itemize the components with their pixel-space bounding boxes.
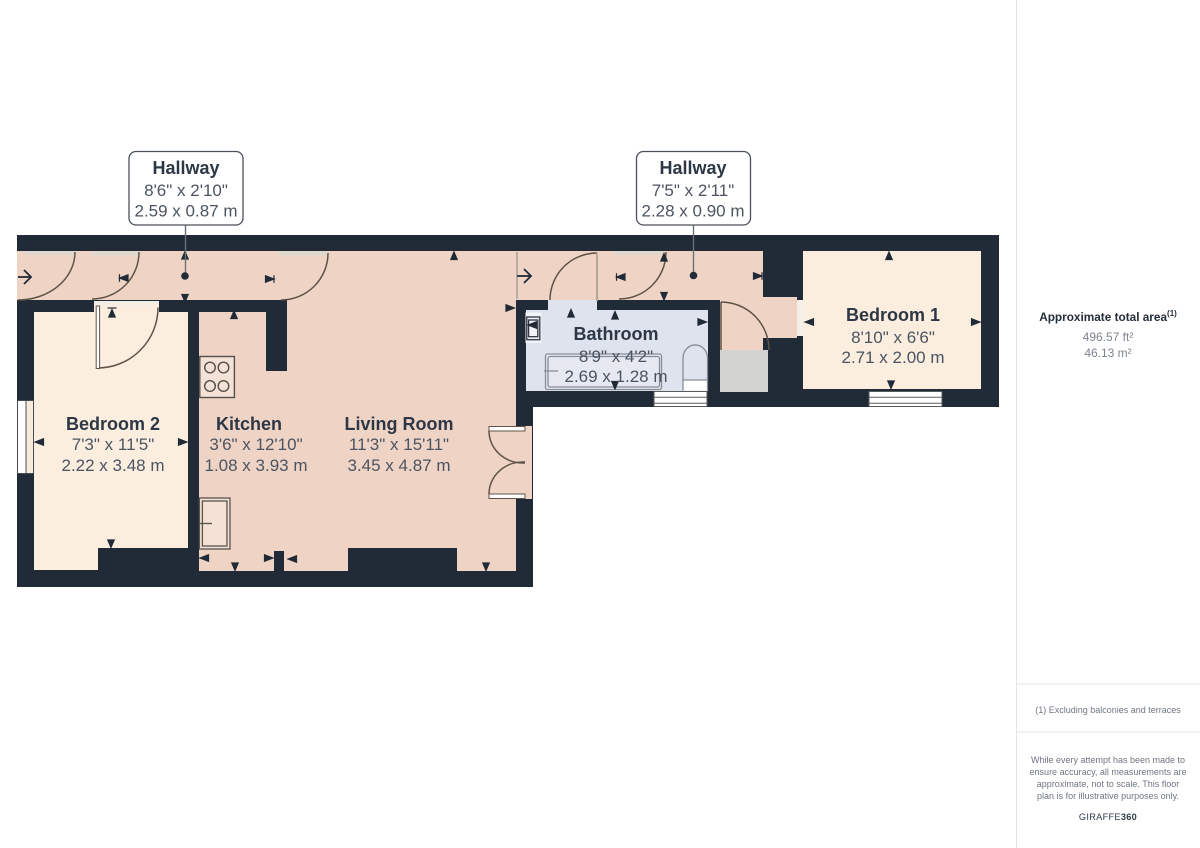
svg-text:2.59 x 0.87 m: 2.59 x 0.87 m [134, 202, 237, 221]
svg-text:2.71 x 2.00 m: 2.71 x 2.00 m [841, 348, 944, 367]
svg-text:plan is for illustrative purpo: plan is for illustrative purposes only. [1037, 791, 1179, 801]
svg-text:ensure accuracy, all measureme: ensure accuracy, all measurements are [1030, 767, 1187, 777]
svg-text:11'3" x 15'11": 11'3" x 15'11" [349, 435, 449, 454]
svg-text:46.13 m²: 46.13 m² [1084, 346, 1131, 360]
svg-text:Hallway: Hallway [659, 158, 726, 178]
svg-text:Bedroom 2: Bedroom 2 [66, 414, 160, 434]
svg-text:While every attempt has been m: While every attempt has been made to [1031, 755, 1185, 765]
svg-text:2.28 x 0.90 m: 2.28 x 0.90 m [641, 202, 744, 221]
svg-text:(1) Excluding balconies and te: (1) Excluding balconies and terraces [1035, 705, 1181, 715]
svg-text:3.45 x 4.87 m: 3.45 x 4.87 m [347, 456, 450, 475]
svg-text:7'5" x 2'11": 7'5" x 2'11" [652, 181, 735, 200]
svg-text:496.57 ft²: 496.57 ft² [1083, 330, 1134, 344]
svg-text:3'6" x 12'10": 3'6" x 12'10" [209, 435, 302, 454]
svg-text:approximate, not to scale. Thi: approximate, not to scale. This floor [1037, 779, 1179, 789]
svg-text:Kitchen: Kitchen [216, 414, 282, 434]
svg-text:8'9" x 4'2": 8'9" x 4'2" [579, 347, 653, 366]
svg-text:1.08 x 3.93 m: 1.08 x 3.93 m [204, 456, 307, 475]
svg-text:Bathroom: Bathroom [574, 324, 659, 344]
svg-text:8'6" x 2'10": 8'6" x 2'10" [144, 181, 228, 200]
svg-text:GIRAFFE360: GIRAFFE360 [1079, 812, 1137, 822]
svg-text:7'3" x 11'5": 7'3" x 11'5" [72, 435, 155, 454]
svg-text:2.22 x 3.48 m: 2.22 x 3.48 m [61, 456, 164, 475]
svg-text:2.69 x 1.28 m: 2.69 x 1.28 m [564, 367, 667, 386]
svg-text:Approximate total area(1): Approximate total area(1) [1039, 309, 1177, 324]
svg-text:Hallway: Hallway [152, 158, 219, 178]
svg-text:8'10" x 6'6": 8'10" x 6'6" [851, 328, 935, 347]
svg-text:Living Room: Living Room [345, 414, 454, 434]
svg-text:Bedroom 1: Bedroom 1 [846, 305, 940, 325]
